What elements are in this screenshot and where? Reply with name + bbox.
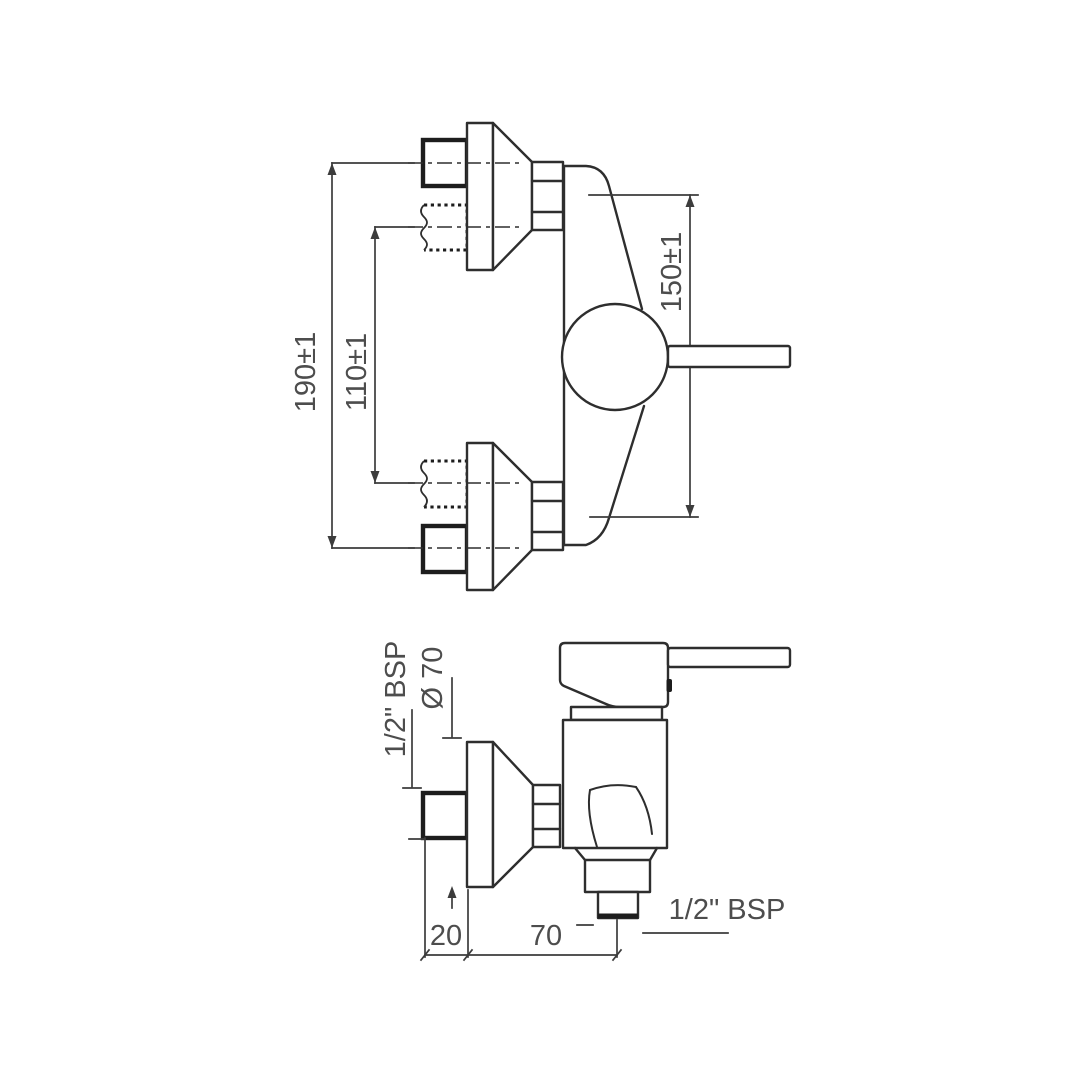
dim-label-outlet-offset: 70 — [530, 920, 562, 952]
top-hex-nut — [532, 162, 563, 230]
side-elevation-view: 1/2" BSP Ø 70 20 70 1/2" BSP — [380, 641, 790, 960]
outlet-chamfer-left — [575, 848, 585, 860]
dim-150-arrow-up — [686, 195, 695, 207]
dim-190-arrow-down — [328, 536, 337, 548]
cartridge-dome-circle — [562, 304, 668, 410]
handle-lever-side — [668, 648, 790, 667]
dim-label-inlet-thread: 1/2" BSP — [380, 641, 412, 758]
bottom-wall-connector — [421, 443, 563, 590]
outlet-collar — [585, 860, 650, 892]
dim-label-wall-offset: 20 — [430, 920, 462, 952]
outlet-chamfer-right — [650, 848, 657, 860]
shower-mixer-drawing: 190±1 110±1 150±1 — [0, 0, 1080, 1080]
front-elevation-view: 190±1 110±1 150±1 — [290, 123, 790, 590]
mixer-body-side — [560, 643, 790, 918]
dim-label-flange-diameter: Ø 70 — [417, 647, 449, 710]
top-wall-connector — [421, 123, 563, 270]
wall-connector-side — [423, 742, 560, 887]
top-wall-flange-plate — [467, 123, 493, 270]
body-neck-side — [571, 707, 662, 720]
dim-110-arrow-down — [371, 471, 380, 483]
dim-190-arrow-up — [328, 163, 337, 175]
offset-arrow-head — [448, 886, 457, 898]
dim-110-arrow-up — [371, 227, 380, 239]
handle-set-screw — [667, 679, 673, 692]
bottom-inlet-thread-hidden — [424, 461, 467, 507]
mixer-body-front — [562, 166, 668, 545]
dim-label-outlet-thread: 1/2" BSP — [669, 894, 786, 926]
bottom-wall-flange-plate — [467, 443, 493, 590]
bottom-hex-nut — [532, 482, 563, 550]
handle-cap-side — [560, 643, 668, 707]
inlet-thread-side — [423, 793, 467, 838]
hex-nut-side — [533, 785, 560, 847]
dim-label-inner: 110±1 — [341, 333, 373, 411]
handle-lever-front — [668, 346, 790, 367]
bottom-wall-flange-cone — [493, 443, 532, 590]
wall-flange-cone-side — [493, 742, 533, 887]
technical-drawing-page: 190±1 110±1 150±1 — [0, 0, 1080, 1080]
bottom-inlet-thread-solid — [423, 526, 467, 572]
dim-label-overall: 190±1 — [290, 332, 322, 412]
dim-150-arrow-down — [686, 505, 695, 517]
top-wall-flange-cone — [493, 123, 532, 270]
wall-flange-plate-side — [467, 742, 493, 887]
dim-label-connection: 150±1 — [656, 232, 688, 312]
